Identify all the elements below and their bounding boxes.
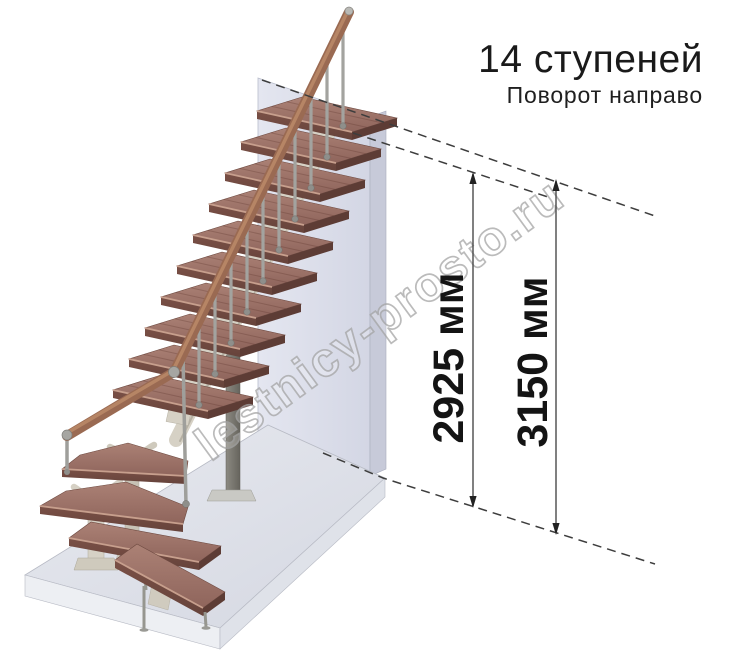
support-post-foot-plate (207, 490, 256, 501)
diagram-page: lestnicy-prosto.ru 2925 мм 3150 мм 14 ст… (0, 0, 744, 655)
baluster-base-joint (324, 154, 330, 160)
baluster-base-joint (244, 309, 250, 315)
dimension-label-total-height: 3150 мм (509, 276, 557, 447)
baluster-base-joint (308, 185, 314, 191)
baluster-base-joint (196, 402, 202, 408)
baluster-base-joint (276, 247, 282, 253)
page-subtitle: Поворот направо (507, 82, 703, 108)
step-leg (205, 612, 206, 627)
pole-base-joint (183, 501, 190, 508)
handrail-top-cap (345, 7, 353, 15)
winder-column-foot (74, 558, 118, 570)
leg-foot (140, 628, 149, 632)
baluster-base-joint (340, 123, 346, 129)
baluster-base-joint (212, 371, 218, 377)
newel-base-joint (64, 469, 70, 475)
baluster-base-joint (228, 340, 234, 346)
baluster-base-joint (260, 278, 266, 284)
handrail-bend-ball (169, 367, 180, 378)
staircase-diagram: lestnicy-prosto.ru 2925 мм 3150 мм 14 ст… (0, 0, 744, 655)
page-title: 14 ступеней (478, 38, 703, 81)
baluster-base-joint (292, 216, 298, 222)
dimension-label-flight-height: 2925 мм (425, 272, 473, 443)
handrail-end-ball (62, 430, 72, 440)
leg-foot (202, 626, 211, 630)
